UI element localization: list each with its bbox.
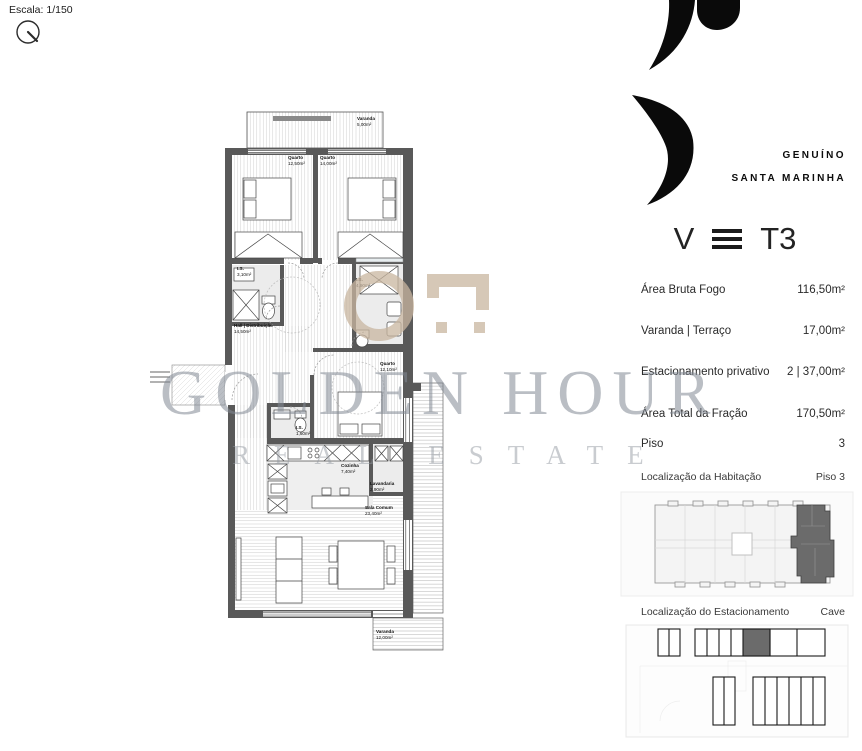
detail-row-estacionamento: Estacionamento privativo 2 | 37,00m² <box>641 366 845 378</box>
apartment-floorplan <box>140 100 570 675</box>
room-label-sala: Sala Comum23,40m² <box>365 505 393 516</box>
room-label-lavandaria: Lavandaria2,90m² <box>370 481 394 492</box>
room-label-quarto2: Quarto14,00m² <box>320 155 337 166</box>
compass-icon <box>14 18 44 48</box>
room-label-is2: I.S.4,90m² <box>356 277 370 288</box>
typology-row: V T3 <box>618 221 852 257</box>
highlighted-parking-spot <box>743 629 770 656</box>
typology-building: V <box>674 221 695 257</box>
detail-row-varanda: Varanda | Terraço 17,00m² <box>641 325 845 337</box>
location-header-estacionamento: Localização do Estacionamento Cave <box>641 606 845 618</box>
balcony-side-floor <box>413 383 443 613</box>
brand-name-line1: GENUÍNO <box>783 150 846 161</box>
entry-landing <box>172 365 225 405</box>
room-label-quarto1: Quarto12,50m² <box>288 155 305 166</box>
scale-label: Escala: 1/150 <box>9 4 73 16</box>
room-label-varanda-bottom: Varanda12,00m² <box>376 629 394 640</box>
typology-type: T3 <box>760 221 796 257</box>
parking-location-plan <box>620 621 855 746</box>
balcony-rail <box>273 116 331 121</box>
room-label-quarto3: Quarto12,10m² <box>380 361 397 372</box>
building-location-plan <box>620 486 855 601</box>
room-label-hall: Hall | Distribuição14,50m² <box>234 323 273 334</box>
detail-row-area-total: Área Total da Fração 170,50m² <box>641 408 845 420</box>
room-label-is3: I.S.1,60m² <box>296 425 310 436</box>
genuino-logo <box>625 0 745 210</box>
equivalence-icon <box>712 225 742 253</box>
room-label-is1: I.S.3,10m² <box>237 266 251 277</box>
location-header-habitacao: Localização da Habitação Piso 3 <box>641 471 845 483</box>
brand-name-line2: SANTA MARINHA <box>731 173 846 184</box>
corridor-floor <box>232 405 267 510</box>
detail-row-area-bruta: Área Bruta Fogo 116,50m² <box>641 284 845 296</box>
room-label-cozinha: Cozinha7,40m² <box>341 463 359 474</box>
room-label-varanda-top: Varanda5,00m² <box>357 116 375 127</box>
detail-row-piso: Piso 3 <box>641 438 845 450</box>
floorplan-sheet: Escala: 1/150 <box>0 0 862 751</box>
